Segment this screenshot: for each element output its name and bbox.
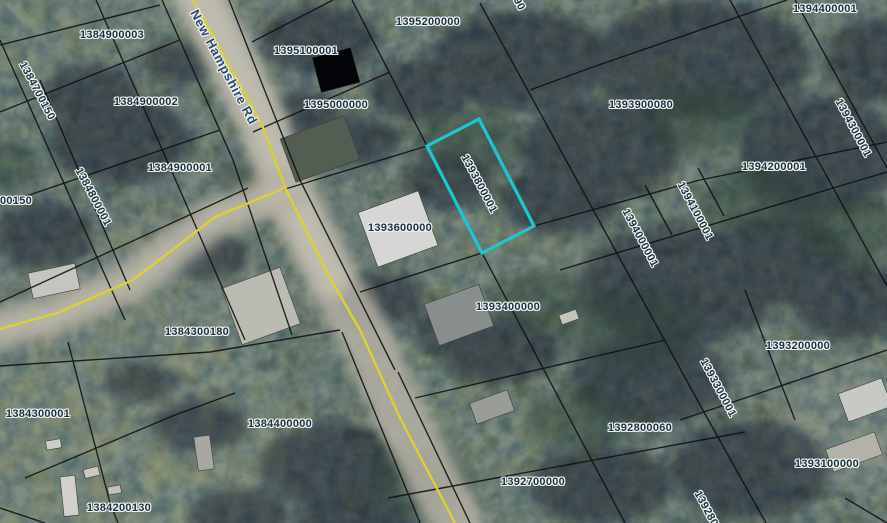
parcel-map[interactable]: 1384900003138490000213849000011384700150… — [0, 0, 887, 523]
aerial-imagery-layer — [0, 0, 887, 523]
image-tint — [0, 0, 887, 523]
